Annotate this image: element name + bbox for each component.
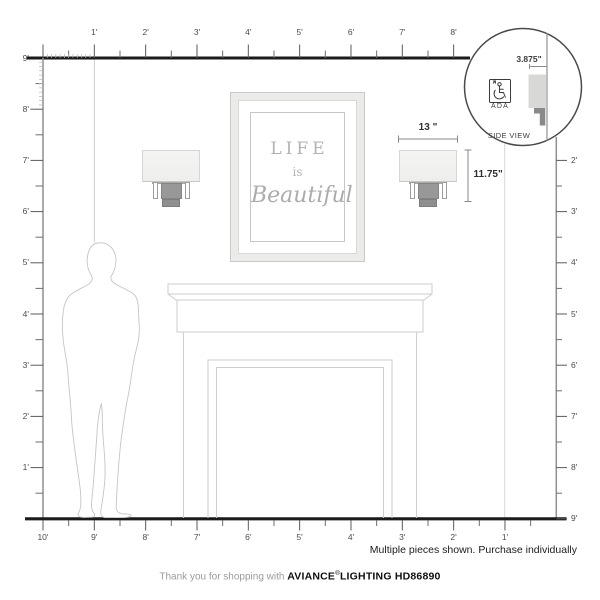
ruler-label: 7' [571, 411, 599, 422]
art-text-is: is [251, 165, 344, 179]
inset-depth-label: 3.875" [505, 53, 553, 65]
ruler-label: 5' [0, 257, 29, 268]
sconce-width-label: 13 " [403, 122, 453, 134]
ruler-label: 4' [338, 532, 364, 543]
ruler-label: 5' [287, 532, 313, 543]
sconce-arm [185, 182, 190, 199]
model-number: HD86890 [392, 570, 441, 582]
ruler-label: 4' [0, 309, 29, 320]
ruler-label: 2' [571, 155, 599, 166]
fireplace-mantel [168, 284, 432, 518]
framed-art-print: LIFE is Beautiful [230, 92, 365, 262]
diagram-linework [0, 0, 600, 600]
sconce-arm [153, 182, 158, 199]
sconce-side-bracket-arm [540, 108, 546, 126]
ruler-label: 1' [83, 27, 105, 38]
ruler-label: 2' [441, 532, 467, 543]
ruler-label: 4' [571, 257, 599, 268]
ruler-label: 8' [133, 532, 159, 543]
ruler-label: 4' [237, 27, 259, 38]
person-silhouette [62, 243, 139, 518]
firebox-outer [208, 360, 392, 518]
ruler-label: 6' [0, 206, 29, 217]
sconce-height-label: 11.75" [474, 169, 503, 181]
art-text-life: LIFE [251, 139, 344, 159]
ruler-label: 9' [571, 513, 599, 524]
sconce-lower-plate [162, 199, 180, 208]
ruler-label: 3' [0, 360, 29, 371]
side-view-label: SIDE VIEW [484, 131, 534, 140]
side-view-inset [465, 29, 582, 146]
sconce-shade [142, 150, 200, 182]
sconce-arm [410, 182, 415, 199]
ruler-label: 3' [571, 206, 599, 217]
ruler-label: 7' [184, 532, 210, 543]
sconce-backplate [161, 183, 182, 199]
sconce-shade [399, 150, 457, 182]
purchase-notice: Multiple pieces shown. Purchase individu… [370, 544, 577, 556]
ruler-label: 7' [391, 27, 413, 38]
ruler-label: 2' [135, 27, 157, 38]
ruler-label: 10' [30, 532, 56, 543]
ruler-label: 1' [0, 462, 29, 473]
sconce-lower-plate [419, 199, 437, 208]
footer-brand-line: Thank you for shopping with AVIANCE®LIGH… [0, 570, 600, 582]
ruler-label: 6' [571, 360, 599, 371]
ruler-label: 2' [0, 411, 29, 422]
ruler-label: 3' [389, 532, 415, 543]
ruler-label: 5' [571, 309, 599, 320]
art-text-beautiful: Beautiful [251, 183, 344, 208]
art-mat: LIFE is Beautiful [238, 100, 357, 254]
sconce-arm [442, 182, 447, 199]
ruler-label: 9' [81, 532, 107, 543]
ruler-label: 3' [186, 27, 208, 38]
sconce-side-shade [529, 75, 547, 109]
ruler-label: 6' [235, 532, 261, 543]
firebox-inner [217, 368, 384, 519]
ruler-label: 8' [0, 104, 29, 115]
ruler-label: 5' [289, 27, 311, 38]
brand-suffix: LIGHTING [340, 570, 392, 582]
ruler-label: 1' [492, 532, 518, 543]
ruler-label: 8' [443, 27, 465, 38]
ruler-label: 8' [571, 462, 599, 473]
thanks-text: Thank you for shopping with [159, 571, 287, 582]
ruler-label: 7' [0, 155, 29, 166]
ruler-label: 9' [0, 53, 29, 64]
ada-label: ADA [487, 103, 513, 110]
brand-name: AVIANCE [287, 570, 335, 582]
ruler-label: 6' [340, 27, 362, 38]
scale-diagram: LIFE is Beautiful 13 " 11.75" 3.875" ADA… [0, 0, 600, 600]
art-canvas: LIFE is Beautiful [250, 112, 345, 242]
sconce-backplate [418, 183, 439, 199]
